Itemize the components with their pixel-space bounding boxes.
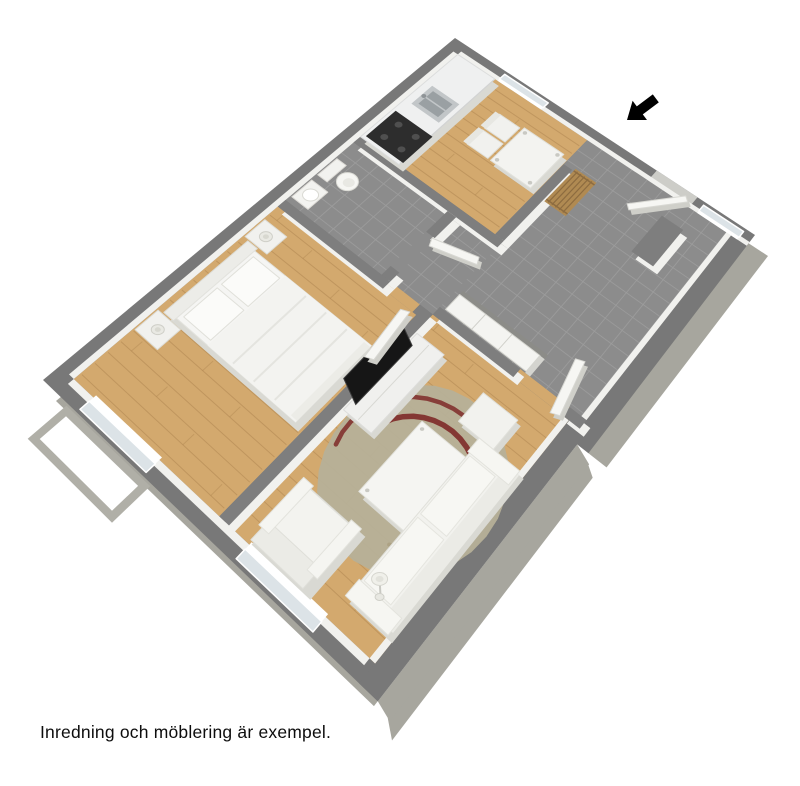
burner — [395, 122, 403, 128]
faucet — [421, 94, 426, 98]
caption: Inredning och möblering är exempel. — [40, 722, 331, 743]
burner — [380, 134, 388, 140]
washbasin-bowl — [303, 189, 319, 201]
table-leg — [555, 153, 559, 157]
table-lamp-top — [263, 234, 269, 239]
table-leg — [528, 181, 532, 185]
entrance-arrow-icon — [627, 94, 659, 120]
burner — [412, 134, 420, 140]
floor-lamp-base — [375, 593, 384, 600]
annotations — [627, 94, 659, 120]
floor-lamp-top — [376, 576, 384, 582]
table-leg — [495, 158, 499, 162]
table-leg — [523, 131, 527, 135]
coffee-table-leg — [420, 427, 424, 431]
burner — [397, 146, 405, 152]
table-lamp-top — [155, 327, 161, 332]
floor-plan-3d — [0, 0, 800, 786]
coffee-table-leg — [365, 489, 369, 493]
toilet-bowl — [343, 178, 355, 187]
